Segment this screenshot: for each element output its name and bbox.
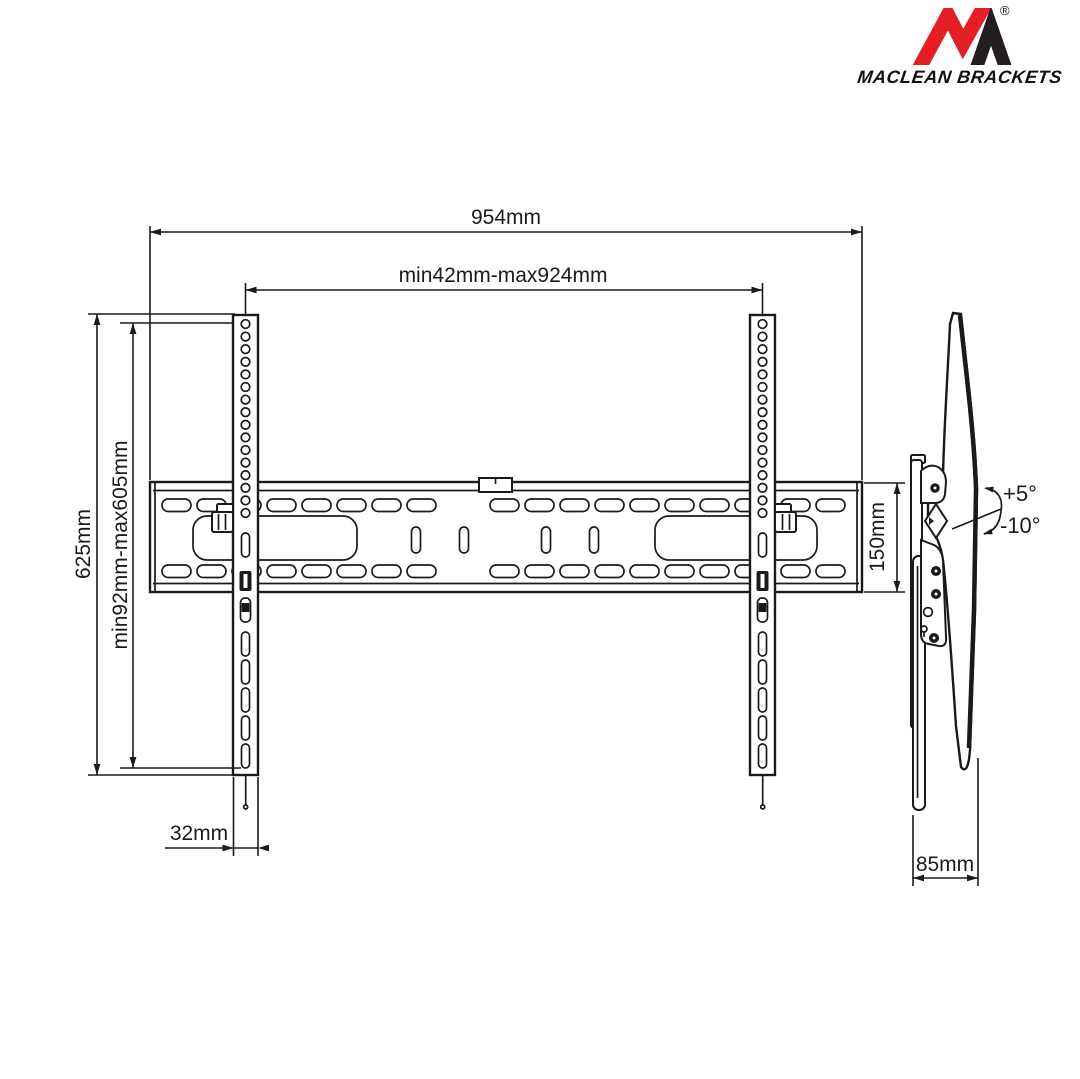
total-height-label: 625mm bbox=[72, 509, 95, 579]
side-view: +5° -10° bbox=[911, 313, 1041, 810]
vesa-rail-right bbox=[750, 315, 775, 809]
logo-m-icon bbox=[915, 1, 1007, 76]
arm-width-label: 32mm bbox=[170, 822, 228, 845]
vesa-rail-left bbox=[233, 315, 258, 809]
total-width-label: 954mm bbox=[471, 206, 541, 229]
tilt-up-label: +5° bbox=[1003, 481, 1037, 506]
front-view bbox=[150, 315, 862, 809]
registered-mark: ® bbox=[1000, 3, 1010, 18]
technical-drawing-page: +5° -10° 954mm min42mm-max924mm bbox=[0, 0, 1080, 1079]
dim-arm-width: 32mm bbox=[165, 777, 269, 856]
dim-hole-pattern-width: min42mm-max924mm bbox=[246, 264, 763, 314]
tilt-down-label: -10° bbox=[1000, 513, 1041, 538]
logo-wordmark: MACLEAN BRACKETS bbox=[856, 67, 1063, 87]
hole-pattern-width-label: min42mm-max924mm bbox=[399, 264, 608, 287]
rail-height-label: 150mm bbox=[866, 502, 889, 572]
maclean-logo: ® MACLEAN BRACKETS bbox=[856, 1, 1063, 87]
hole-pattern-height-label: min92mm-max605mm bbox=[109, 441, 132, 650]
profile-depth-label: 85mm bbox=[916, 853, 974, 876]
dim-rail-height: 150mm bbox=[864, 483, 905, 592]
bubble-level-holder bbox=[479, 478, 512, 492]
technical-drawing-canvas: +5° -10° 954mm min42mm-max924mm bbox=[0, 0, 1080, 1079]
tilt-mechanism bbox=[921, 466, 947, 646]
